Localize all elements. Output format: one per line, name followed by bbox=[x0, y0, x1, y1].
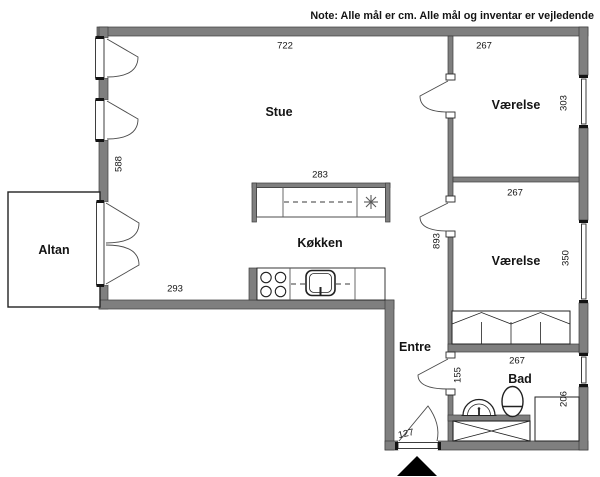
wall-bottom-upper bbox=[99, 300, 394, 309]
wall-bottom-right-piece bbox=[438, 441, 588, 450]
floor-plan: Note: Alle mål er cm. Alle mål og invent… bbox=[0, 0, 600, 477]
dim-stue-depth: 588 bbox=[114, 156, 125, 172]
window-left-2 bbox=[96, 98, 139, 142]
wall-right-seg-c bbox=[579, 303, 588, 353]
toilet-symbol bbox=[502, 387, 523, 417]
window-bad bbox=[579, 353, 588, 387]
window-left-1 bbox=[96, 36, 139, 80]
room-label-vaerelse-top: Værelse bbox=[492, 98, 541, 112]
dim-island-width: 283 bbox=[312, 170, 328, 181]
entrance-arrow-icon bbox=[397, 456, 437, 476]
room-label-koekken: Køkken bbox=[297, 236, 342, 250]
dim-vaerelse-top-width: 267 bbox=[476, 41, 492, 52]
wall-entre-left bbox=[385, 300, 394, 450]
room-label-vaerelse-mid: Værelse bbox=[492, 254, 541, 268]
wall-hall-seg-a bbox=[448, 36, 453, 80]
bathroom-sink-symbol bbox=[462, 400, 497, 416]
dim-bad-wall: 155 bbox=[453, 367, 464, 383]
note: Note: Alle mål er cm. Alle mål og invent… bbox=[310, 10, 594, 22]
kitchen-sink-symbol bbox=[306, 271, 335, 296]
floor-plan-drawing: Note: Alle mål er cm. Alle mål og invent… bbox=[0, 0, 600, 477]
window-vaerelse-mid bbox=[579, 220, 588, 303]
room-label-stue: Stue bbox=[265, 105, 292, 119]
hob-symbol bbox=[364, 195, 378, 209]
wall-right-seg-a bbox=[579, 27, 588, 75]
wall-left-seg-b bbox=[99, 78, 108, 100]
door-entrance bbox=[395, 406, 441, 450]
door-vaerelse-top bbox=[420, 74, 455, 118]
wall-right-seg-b bbox=[579, 128, 588, 220]
dim-hall-depth: 893 bbox=[432, 233, 443, 249]
dim-entrance-width: 127 bbox=[397, 427, 415, 441]
wall-top bbox=[97, 27, 588, 36]
room-label-bad: Bad bbox=[508, 372, 532, 386]
dim-vaerelse-top-depth: 303 bbox=[559, 95, 570, 111]
wardrobe-symbol bbox=[452, 311, 570, 344]
dim-kitchen-wall: 293 bbox=[167, 284, 183, 295]
dim-stue-width: 722 bbox=[277, 41, 293, 52]
dim-vaerelse-mid-depth: 350 bbox=[561, 250, 572, 266]
room-label-entre: Entre bbox=[399, 340, 431, 354]
dim-vaerelse-mid-width: 267 bbox=[507, 188, 523, 199]
wall-hall-seg-b bbox=[448, 113, 453, 202]
dim-bad-depth: 206 bbox=[559, 391, 570, 407]
bathroom-cabinet-symbol bbox=[535, 397, 579, 441]
wall-bad-top bbox=[448, 344, 579, 352]
wall-between-rooms bbox=[453, 177, 579, 182]
door-bad bbox=[418, 352, 455, 395]
altan-door bbox=[97, 200, 140, 287]
kitchen-counter bbox=[257, 268, 385, 300]
window-vaerelse-top bbox=[579, 75, 588, 128]
wall-kitchen-stub bbox=[249, 268, 257, 300]
room-label-altan: Altan bbox=[38, 243, 69, 257]
wall-right-seg-d bbox=[579, 387, 588, 450]
door-vaerelse-mid bbox=[420, 196, 455, 237]
kitchen-island bbox=[252, 183, 390, 222]
dim-bad-width: 267 bbox=[509, 356, 525, 367]
shower-symbol bbox=[453, 421, 530, 441]
